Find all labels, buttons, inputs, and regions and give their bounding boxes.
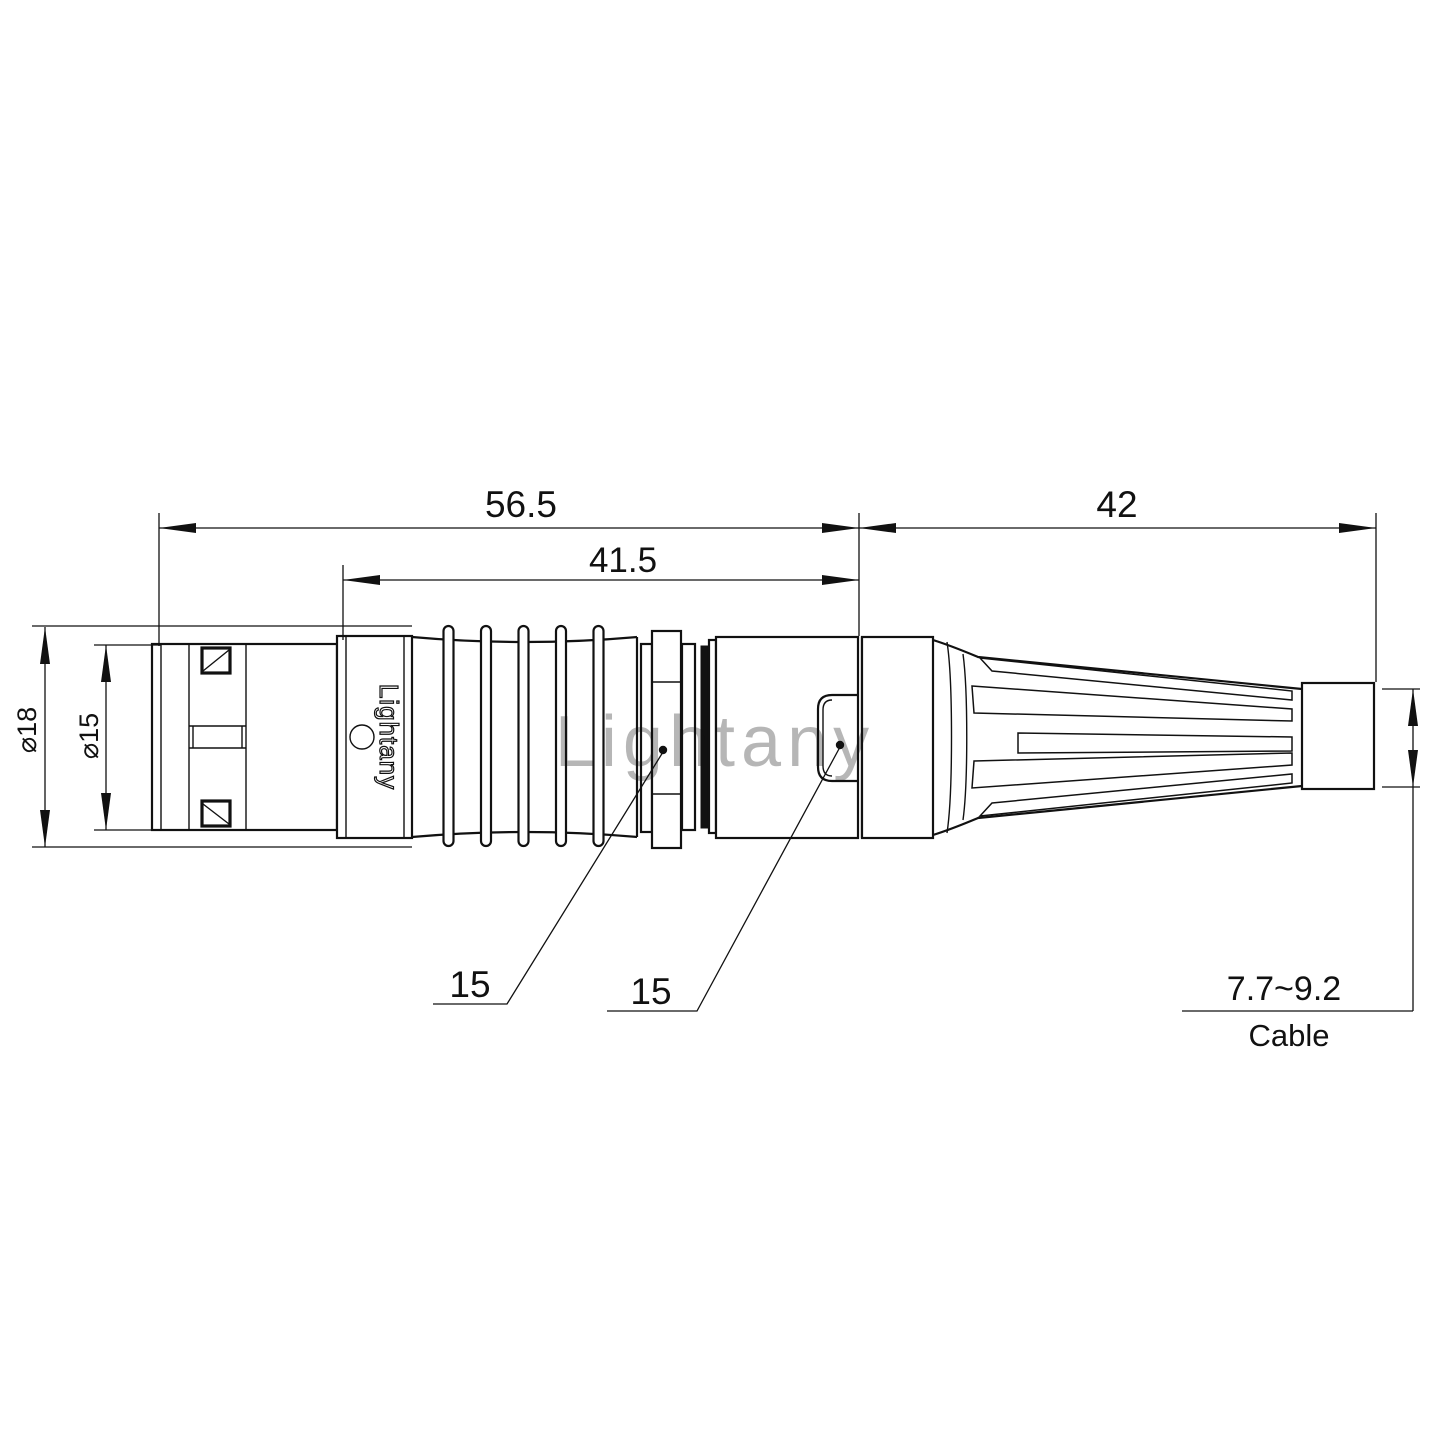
arrow-overall-right bbox=[822, 523, 859, 533]
boot-collar-curve-1 bbox=[947, 642, 952, 833]
rib-1 bbox=[444, 626, 454, 846]
arrow-boot-right bbox=[1339, 523, 1376, 533]
dim-body-label: 41.5 bbox=[589, 541, 657, 580]
arrow-overall-left bbox=[159, 523, 196, 533]
arrow-dia18-top bbox=[40, 627, 50, 664]
cable-word-label: Cable bbox=[1249, 1018, 1330, 1053]
leader-left-label: 15 bbox=[449, 964, 490, 1005]
technical-drawing-page: Lightany bbox=[0, 0, 1440, 1440]
dim-dia18-label: ⌀18 bbox=[12, 707, 42, 753]
arrow-dia15-top bbox=[101, 645, 111, 682]
strain-relief-boot bbox=[933, 640, 1374, 835]
arrow-body-left bbox=[343, 575, 380, 585]
rib-2 bbox=[481, 626, 491, 846]
front-coupling-nut bbox=[152, 644, 337, 830]
arrow-cable-dia-top bbox=[1408, 689, 1418, 726]
arrow-dia15-bottom bbox=[101, 793, 111, 830]
boot-collar-curve-2 bbox=[963, 654, 967, 820]
dim-dia15-label: ⌀15 bbox=[74, 713, 104, 759]
cable-range-label: 7.7~9.2 bbox=[1227, 970, 1341, 1008]
rib-3 bbox=[519, 626, 529, 846]
boot-flute-3 bbox=[1018, 733, 1292, 753]
leader-right-label: 15 bbox=[630, 971, 671, 1012]
arrow-cable-dia-bottom bbox=[1408, 750, 1418, 787]
marked-barrel: Lightany bbox=[337, 636, 412, 838]
arrow-body-right bbox=[822, 575, 859, 585]
dim-overall-label: 56.5 bbox=[485, 484, 557, 525]
watermark-text: Lightany bbox=[555, 702, 875, 782]
cable-exit-tip bbox=[1302, 683, 1374, 789]
dim-boot-label: 42 bbox=[1096, 484, 1137, 525]
arrow-dia18-bottom bbox=[40, 810, 50, 847]
arrow-boot-left bbox=[859, 523, 896, 533]
front-nut-outline bbox=[152, 644, 337, 830]
shell-marking-text: Lightany bbox=[374, 684, 404, 790]
connector-drawing: Lightany bbox=[0, 0, 1440, 1440]
